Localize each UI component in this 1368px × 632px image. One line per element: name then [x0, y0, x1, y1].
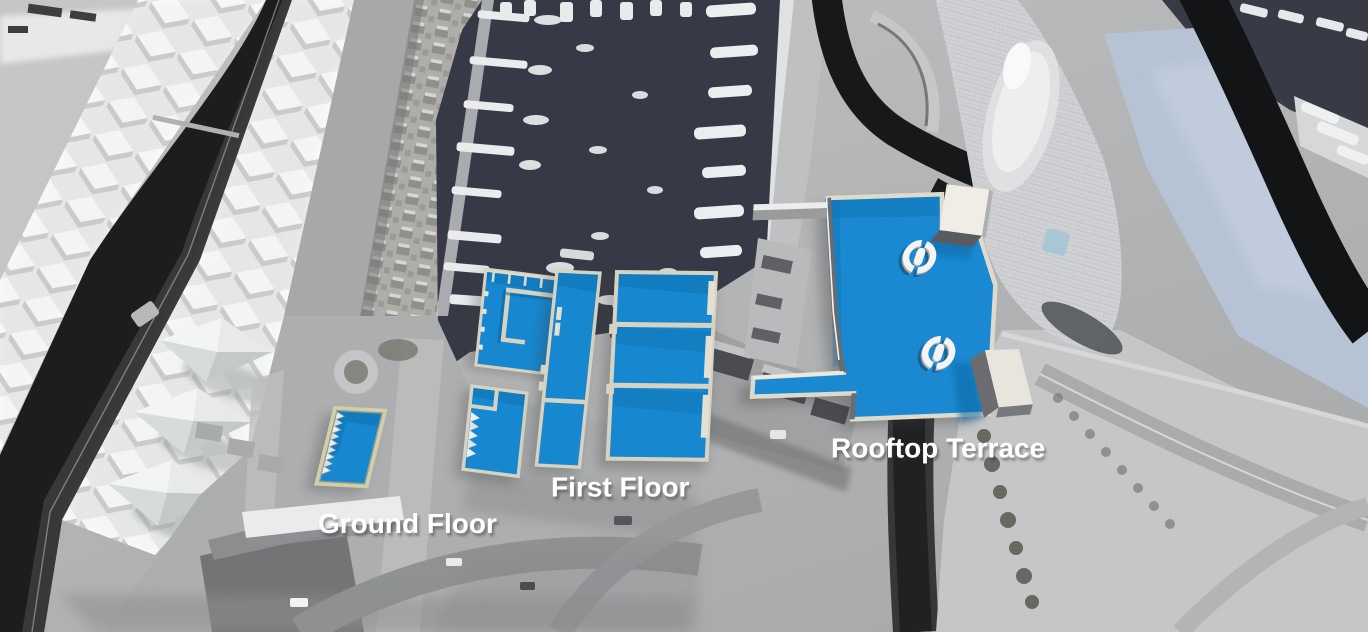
svg-text:First Floor: First Floor [551, 472, 690, 503]
svg-text:Ground Floor: Ground Floor [318, 508, 497, 539]
svg-text:Rooftop Terrace: Rooftop Terrace [831, 433, 1045, 464]
